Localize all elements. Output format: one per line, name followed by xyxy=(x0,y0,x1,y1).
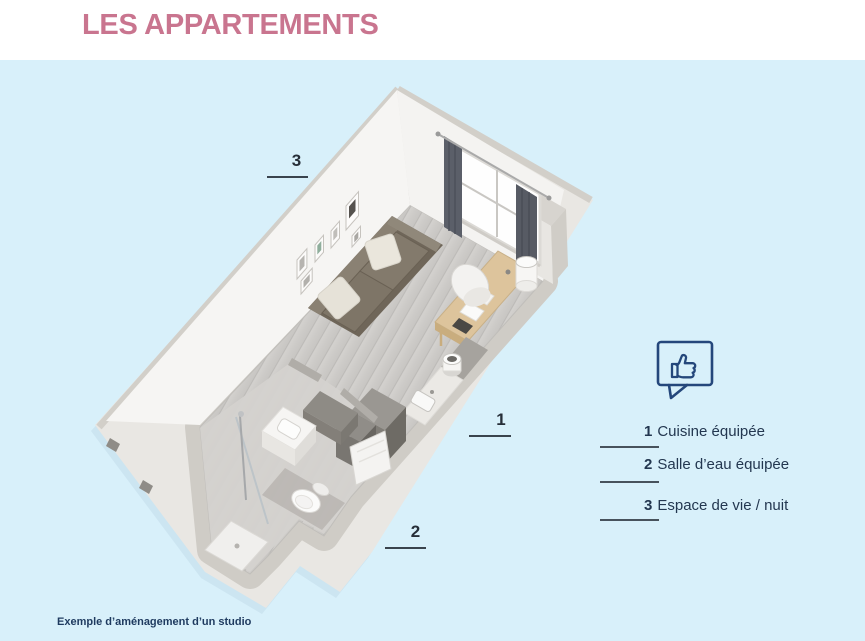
floor-plan-illustration xyxy=(0,60,865,641)
legend-separator xyxy=(600,481,659,483)
marker-kitchen: 1 xyxy=(469,405,511,437)
legend-separator xyxy=(600,446,659,448)
legend-number: 2 xyxy=(644,456,652,473)
legend-separator xyxy=(600,519,659,521)
table-lamp xyxy=(516,257,537,292)
legend-item-kitchen: 1Cuisine équipée xyxy=(644,423,765,440)
header-band: LES APPARTEMENTS xyxy=(0,0,865,60)
legend-label: Espace de vie / nuit xyxy=(657,497,788,514)
marker-bathroom: 2 xyxy=(385,517,426,549)
legend-item-bathroom: 2Salle d’eau équipée xyxy=(644,456,789,473)
content-area: 3 1 2 1Cuisine équipée 2Salle d’eau équi… xyxy=(0,60,865,641)
legend-label: Cuisine équipée xyxy=(657,423,765,440)
page-title: LES APPARTEMENTS xyxy=(82,9,379,42)
counter-canister xyxy=(443,354,461,377)
marker-living-area: 3 xyxy=(267,146,308,178)
legend-number: 1 xyxy=(644,423,652,440)
legend-item-living: 3Espace de vie / nuit xyxy=(644,497,788,514)
thumbs-up-bubble-icon xyxy=(654,339,718,401)
caption: Exemple d’aménagement d’un studio xyxy=(57,616,251,628)
legend-label: Salle d’eau équipée xyxy=(657,456,789,473)
legend-number: 3 xyxy=(644,497,652,514)
